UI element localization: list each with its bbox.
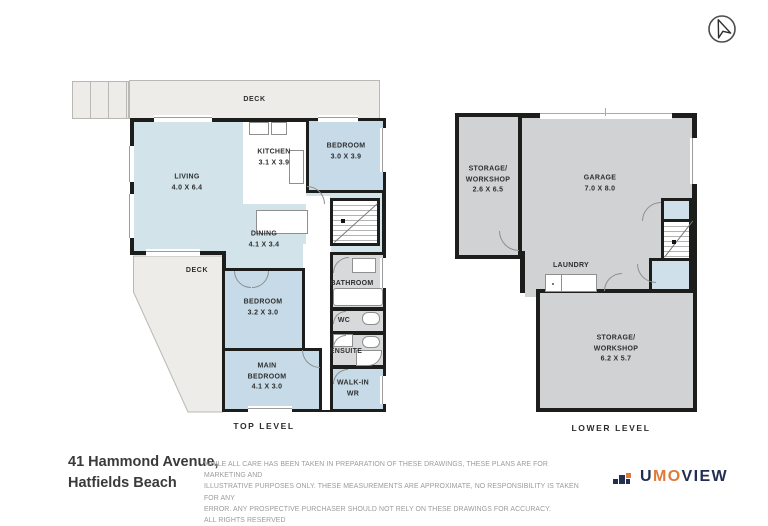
window-marker [146, 249, 200, 256]
room-ensuite-label: ENSUITE [330, 347, 362, 358]
storage-1-dims: 2.6 X 6.5 [466, 185, 510, 196]
window-marker [380, 128, 387, 172]
garage-door-tick [605, 108, 606, 116]
disclaimer-text: WHILE ALL CARE HAS BEEN TAKEN IN PREPARA… [204, 459, 584, 526]
deck-side-label: DECK [186, 266, 208, 277]
hallway [303, 244, 331, 348]
room-walk-in-name-2: WR [337, 389, 369, 400]
stairs-marker [672, 240, 676, 244]
storage-2-name-1: STORAGE/ [594, 333, 638, 344]
room-kitchen-dims: 3.1 X 3.9 [257, 158, 290, 169]
storage-2-name-2: WORKSHOP [594, 344, 638, 355]
room-garage-label: GARAGE 7.0 X 8.0 [584, 174, 617, 195]
logo-text-part-3: VIEW [682, 468, 729, 485]
room-kitchen-label: KITCHEN 3.1 X 3.9 [257, 148, 290, 169]
north-arrow-compass-icon [704, 11, 740, 47]
room-bedroom-2-label: BEDROOM 3.2 X 3.0 [244, 298, 283, 319]
room-main-bedroom-label: MAIN BEDROOM 4.1 X 3.0 [248, 361, 287, 393]
garage-door-line [540, 113, 672, 114]
umoview-logo: UMOVIEW [612, 468, 728, 486]
room-dining-dims: 4.1 X 3.4 [249, 240, 280, 251]
logo-text: UMOVIEW [640, 468, 728, 486]
disclaimer-line-2: ILLUSTRATIVE PURPOSES ONLY. THESE MEASUR… [204, 481, 584, 503]
window-marker [248, 406, 292, 413]
window-marker [127, 146, 134, 182]
disclaimer-line-4: ALL RIGHTS RESERVED [204, 515, 584, 526]
floor-plan-page: { "compass": {"icon": "north-arrow-compa… [0, 0, 768, 512]
window-marker [318, 115, 358, 122]
window-marker [380, 376, 387, 404]
garage-name: GARAGE [584, 174, 617, 185]
laundry-bench-divider [561, 275, 562, 291]
deck-steps [72, 81, 129, 119]
window-marker [690, 138, 697, 184]
disclaimer-line-3: ERROR. ANY PROSPECTIVE PURCHASER SHOULD … [204, 504, 584, 515]
building-steps-logo-icon [612, 469, 636, 485]
deck-side [133, 255, 224, 413]
lower-level-title: LOWER LEVEL [572, 423, 651, 433]
storage-1-name-2: WORKSHOP [466, 175, 510, 186]
room-living-label: LIVING 4.0 X 6.4 [172, 173, 203, 194]
room-bedroom-2-name: BEDROOM [244, 298, 283, 309]
kitchen-cooktop-fixture [271, 122, 287, 135]
wc-toilet-fixture [362, 312, 380, 325]
garage-door-opening [540, 110, 672, 119]
room-living-dims: 4.0 X 6.4 [172, 183, 203, 194]
room-walk-in-name-1: WALK-IN [337, 379, 369, 390]
room-walk-in-label: WALK-IN WR [337, 379, 369, 400]
storage-2-dims: 6.2 X 5.7 [594, 354, 638, 365]
deck-top: DECK [129, 80, 380, 119]
room-living-name: LIVING [172, 173, 203, 184]
window-marker [380, 258, 387, 288]
kitchen-fridge-fixture [289, 150, 304, 184]
garage-dims: 7.0 X 8.0 [584, 184, 617, 195]
deck-top-label: DECK [243, 96, 265, 103]
stairs-marker [341, 219, 345, 223]
room-main-bedroom-name-1: MAIN [248, 361, 287, 372]
room-bathroom-label: BATHROOM [330, 279, 373, 290]
bath-tub-fixture [333, 288, 383, 306]
room-storage-workshop-2-label: STORAGE/ WORKSHOP 6.2 X 5.7 [594, 333, 638, 365]
room-dining-name: DINING [249, 230, 280, 241]
ensuite-toilet-fixture [362, 336, 380, 348]
kitchen-sink-fixture [249, 122, 269, 135]
room-bedroom-top-name: BEDROOM [327, 142, 366, 153]
storage-1-name-1: STORAGE/ [466, 164, 510, 175]
room-laundry-label: LAUNDRY [553, 261, 589, 272]
room-dining-label: DINING 4.1 X 3.4 [249, 230, 280, 251]
room-bedroom-top-label: BEDROOM 3.0 X 3.9 [327, 142, 366, 163]
room-wc-label: WC [338, 316, 350, 327]
top-level-title: TOP LEVEL [233, 421, 294, 431]
window-marker [127, 194, 134, 238]
room-kitchen-name: KITCHEN [257, 148, 290, 159]
address-line-1: 41 Hammond Avenue, [68, 452, 218, 473]
room-bedroom-top-dims: 3.0 X 3.9 [327, 152, 366, 163]
property-address: 41 Hammond Avenue, Hatfields Beach [68, 452, 218, 494]
room-main-bedroom-name-2: BEDROOM [248, 372, 287, 383]
disclaimer-line-1: WHILE ALL CARE HAS BEEN TAKEN IN PREPARA… [204, 459, 584, 481]
window-marker [154, 115, 212, 122]
room-main-bedroom-dims: 4.1 X 3.0 [248, 382, 287, 393]
logo-text-part-1: U [640, 468, 653, 485]
logo-text-part-2: MO [653, 468, 682, 485]
bathroom-vanity-fixture [352, 258, 376, 273]
laundry-tub-drain [552, 283, 554, 285]
address-line-2: Hatfields Beach [68, 473, 218, 494]
room-storage-workshop-1-label: STORAGE/ WORKSHOP 2.6 X 6.5 [466, 164, 510, 196]
room-bedroom-2-dims: 3.2 X 3.0 [244, 308, 283, 319]
